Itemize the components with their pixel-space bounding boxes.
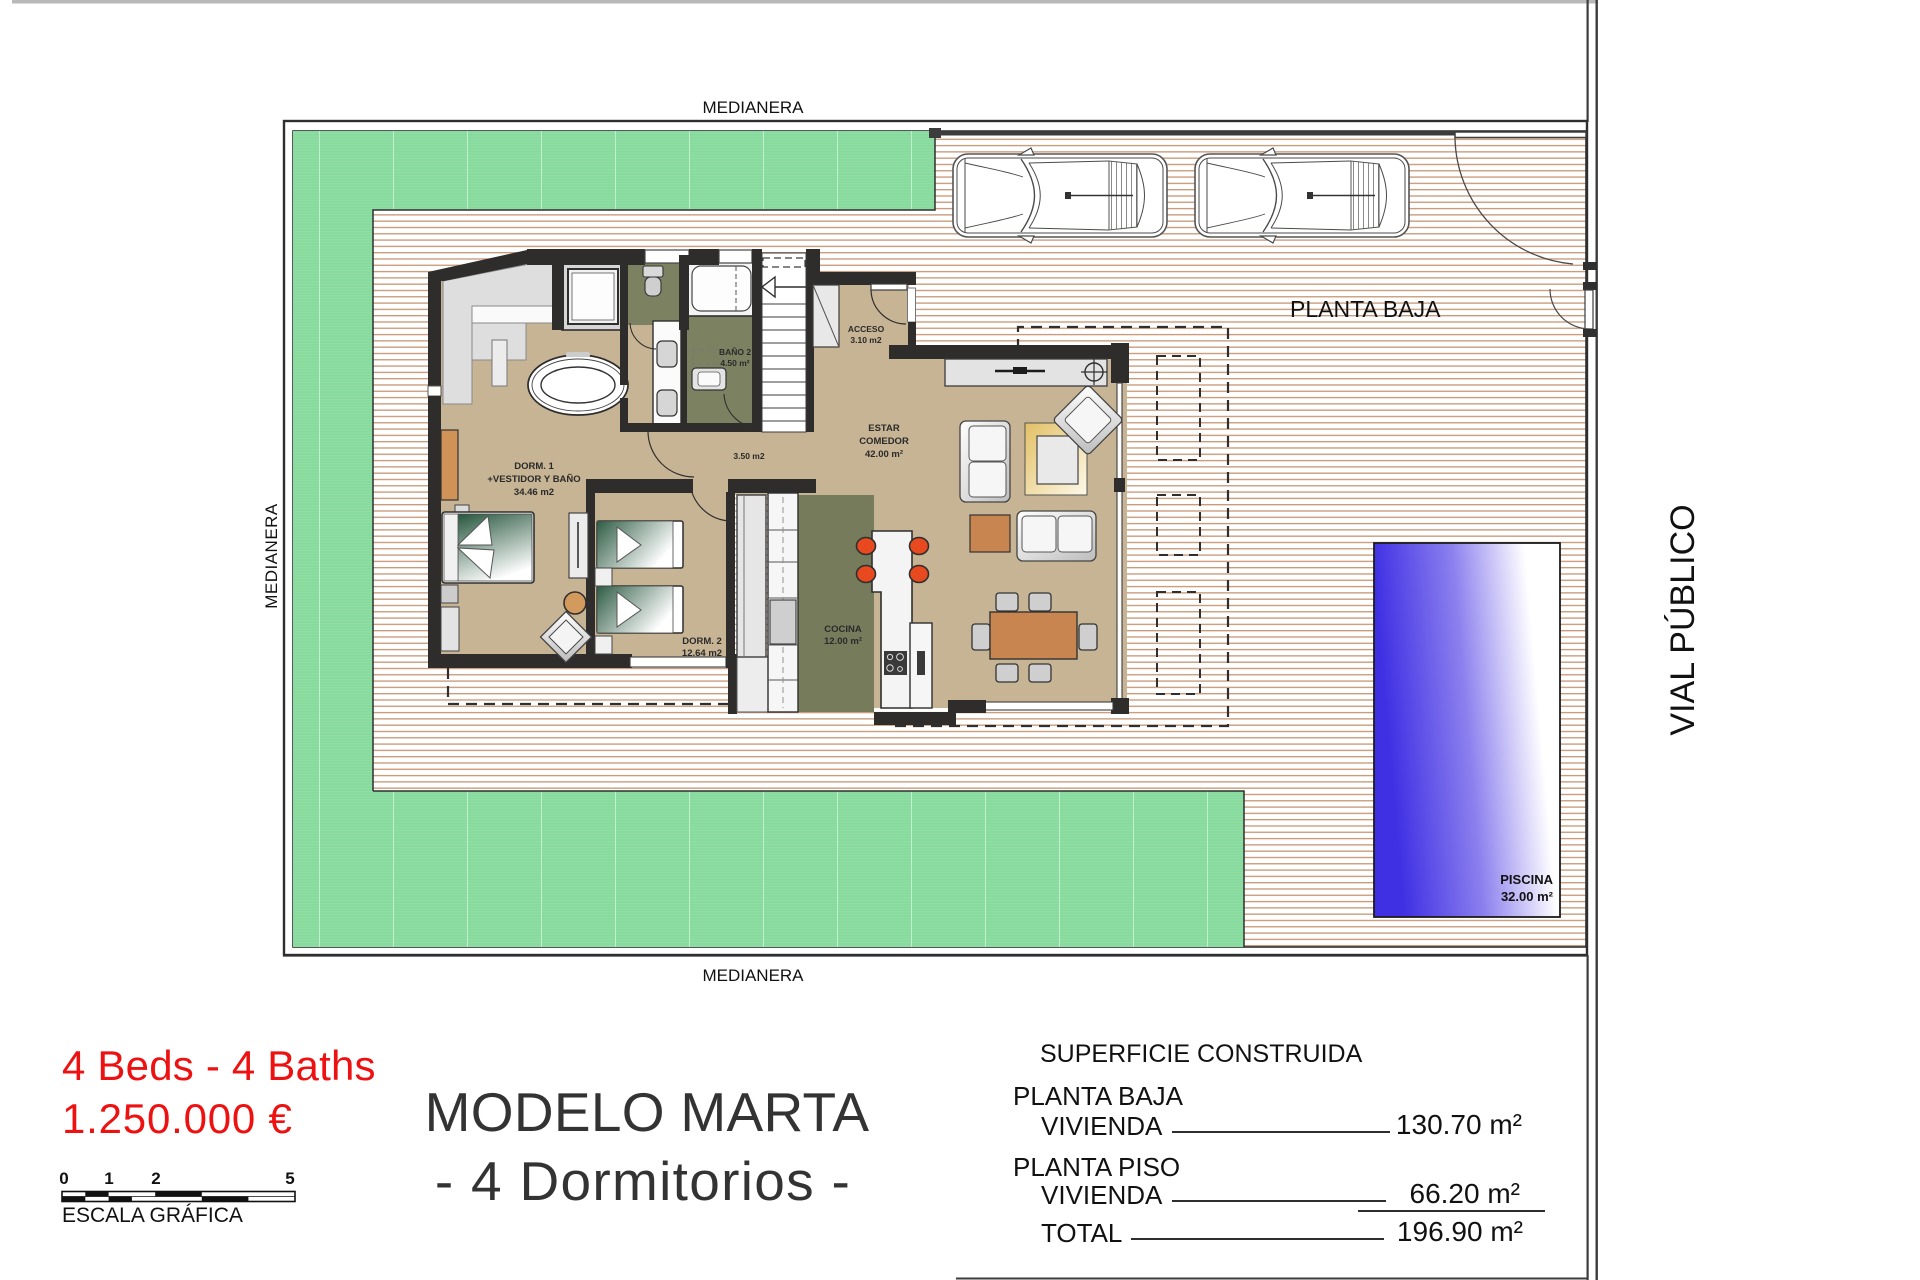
svg-text:MEDIANERA: MEDIANERA bbox=[702, 966, 804, 985]
svg-text:PLANTA BAJA: PLANTA BAJA bbox=[1290, 296, 1441, 322]
svg-text:MEDIANERA: MEDIANERA bbox=[702, 98, 804, 117]
svg-text:MODELO MARTA: MODELO MARTA bbox=[425, 1081, 870, 1143]
svg-text:12.64 m2: 12.64 m2 bbox=[682, 648, 722, 659]
svg-text:VIAL PÚBLICO: VIAL PÚBLICO bbox=[1664, 504, 1702, 735]
svg-text:0: 0 bbox=[59, 1169, 68, 1188]
svg-text:- 4 Dormitorios -: - 4 Dormitorios - bbox=[435, 1150, 851, 1212]
svg-text:130.70 m²: 130.70 m² bbox=[1396, 1109, 1522, 1140]
svg-text:+VESTIDOR Y BAÑO: +VESTIDOR Y BAÑO bbox=[487, 474, 580, 485]
svg-text:4.50 m²: 4.50 m² bbox=[720, 358, 749, 368]
svg-text:ESCALA GRÁFICA: ESCALA GRÁFICA bbox=[62, 1204, 243, 1227]
svg-text:PLANTA BAJA: PLANTA BAJA bbox=[1013, 1081, 1184, 1111]
svg-text:4 Beds - 4 Baths: 4 Beds - 4 Baths bbox=[62, 1042, 376, 1089]
svg-text:MEDIANERA: MEDIANERA bbox=[262, 503, 281, 609]
svg-text:66.20 m²: 66.20 m² bbox=[1410, 1178, 1521, 1209]
svg-text:12.00 m²: 12.00 m² bbox=[824, 636, 862, 647]
svg-text:DORM. 2: DORM. 2 bbox=[682, 636, 722, 647]
svg-text:34.46 m2: 34.46 m2 bbox=[514, 487, 554, 498]
svg-text:32.00 m²: 32.00 m² bbox=[1501, 889, 1554, 904]
svg-text:ACCESO: ACCESO bbox=[848, 324, 885, 334]
svg-text:42.00 m²: 42.00 m² bbox=[865, 449, 903, 460]
svg-text:1.250.000 €: 1.250.000 € bbox=[62, 1095, 293, 1142]
svg-text:PLANTA PISO: PLANTA PISO bbox=[1013, 1152, 1180, 1182]
svg-text:1: 1 bbox=[104, 1169, 113, 1188]
svg-text:PISCINA: PISCINA bbox=[1500, 872, 1553, 887]
svg-text:COCINA: COCINA bbox=[824, 624, 862, 635]
svg-text:BAÑO 2: BAÑO 2 bbox=[719, 347, 751, 357]
svg-text:VIVIENDA: VIVIENDA bbox=[1041, 1180, 1163, 1210]
svg-text:196.90 m²: 196.90 m² bbox=[1397, 1216, 1523, 1247]
svg-text:3.50 m2: 3.50 m2 bbox=[733, 451, 764, 461]
svg-text:ESTAR: ESTAR bbox=[868, 423, 900, 434]
svg-text:SUPERFICIE CONSTRUIDA: SUPERFICIE CONSTRUIDA bbox=[1040, 1040, 1363, 1068]
svg-text:2: 2 bbox=[151, 1169, 160, 1188]
svg-text:3.10 m2: 3.10 m2 bbox=[850, 335, 881, 345]
svg-text:5: 5 bbox=[285, 1169, 294, 1188]
svg-text:DORM. 1: DORM. 1 bbox=[514, 461, 554, 472]
svg-text:VIVIENDA: VIVIENDA bbox=[1041, 1111, 1163, 1141]
svg-text:COMEDOR: COMEDOR bbox=[859, 436, 909, 447]
svg-text:TOTAL: TOTAL bbox=[1041, 1218, 1122, 1248]
